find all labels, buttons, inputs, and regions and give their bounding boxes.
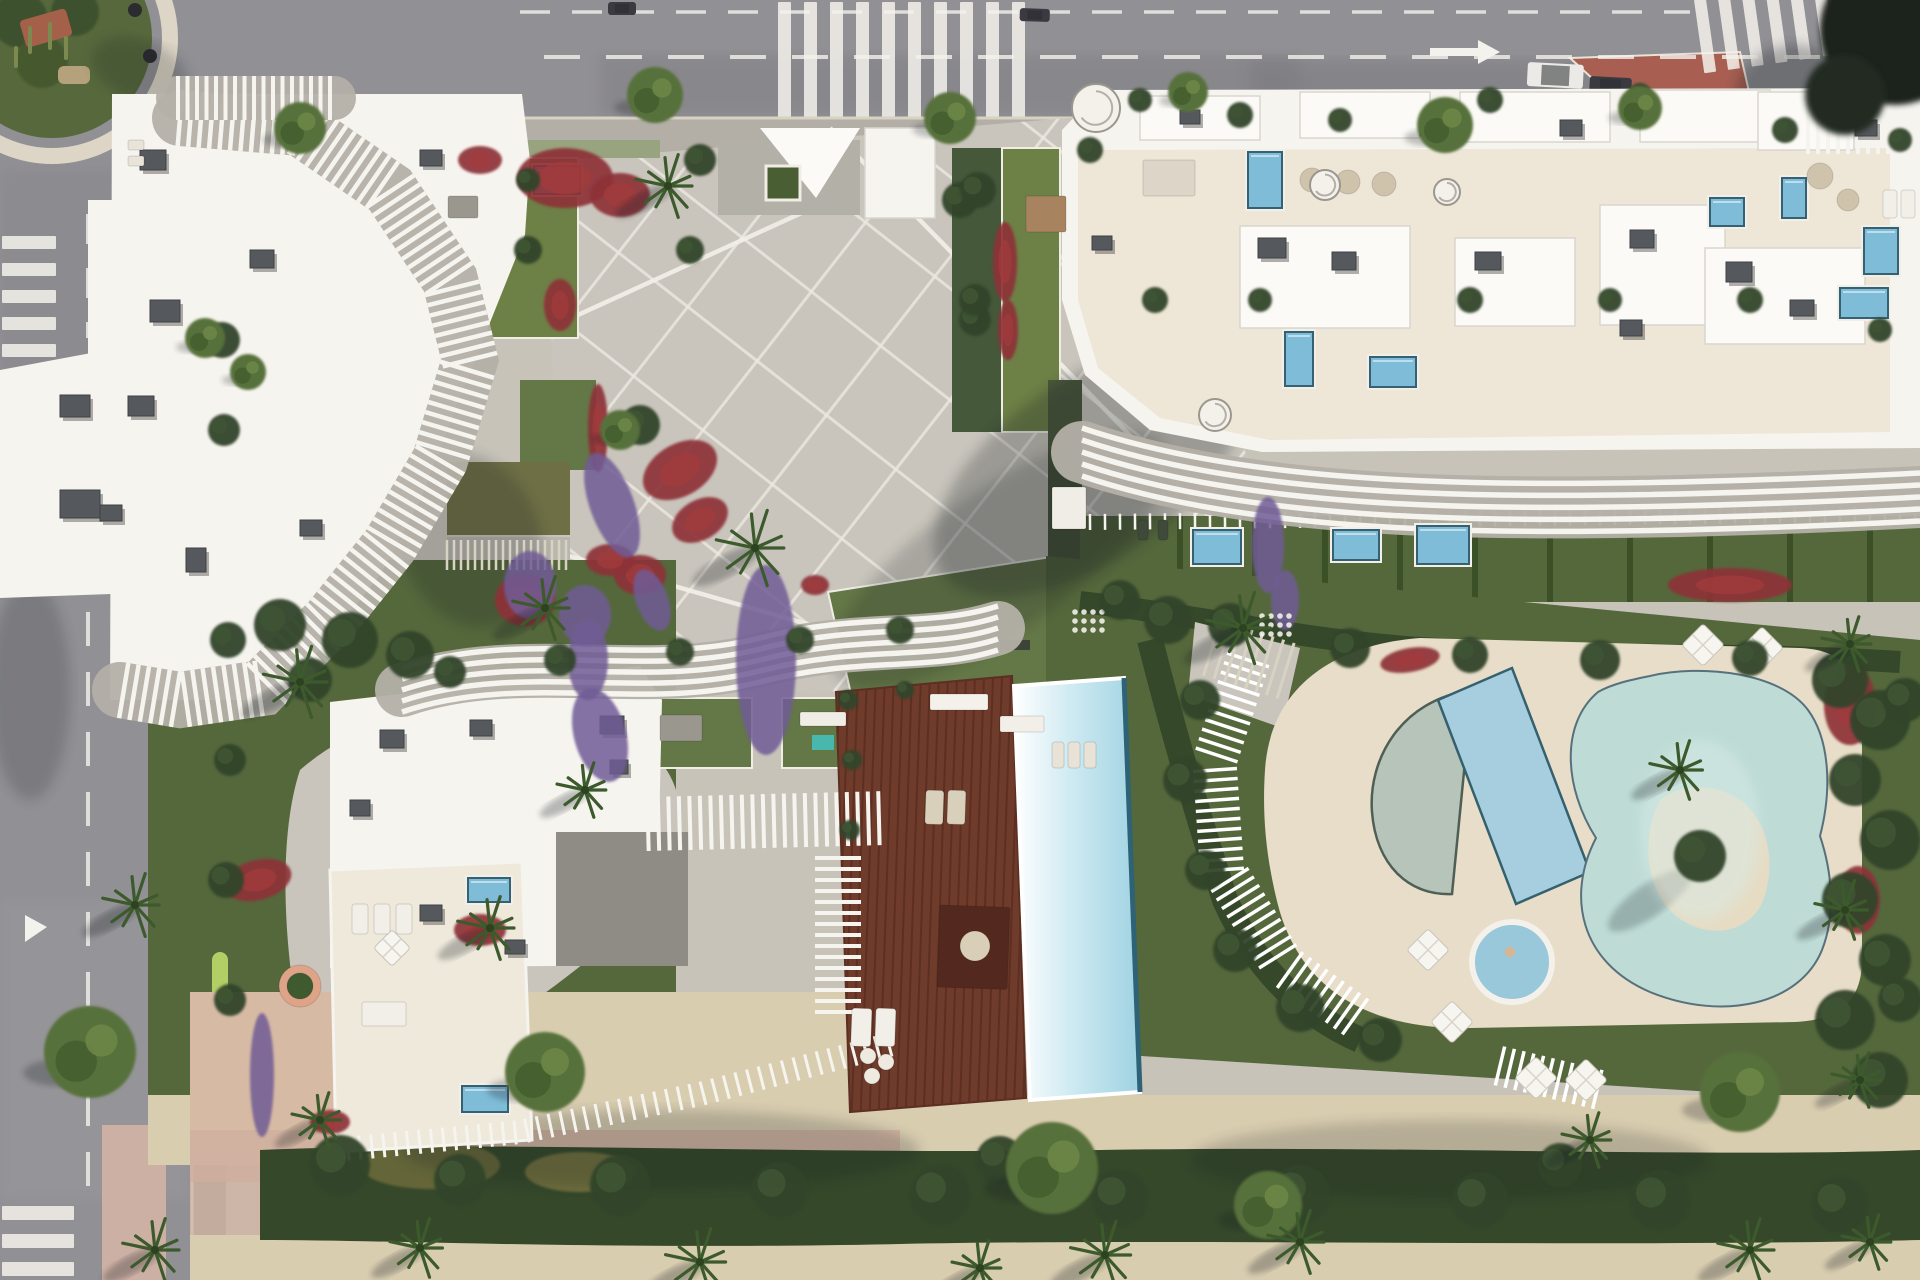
shrub-cluster — [1180, 680, 1220, 720]
hatch-box — [1620, 320, 1642, 336]
shrub-highlight — [1870, 321, 1882, 333]
shrub-highlight — [1600, 291, 1612, 303]
hatch-box — [470, 720, 492, 736]
hatch-box — [350, 800, 370, 816]
shrub-highlight — [1856, 698, 1886, 728]
sun-lounger — [851, 1008, 872, 1047]
shrub-highlight — [1145, 290, 1158, 303]
shrub-highlight — [1189, 855, 1209, 875]
shrub-highlight — [214, 627, 232, 645]
shrub-highlight — [1167, 764, 1189, 786]
plunge-pool — [1707, 195, 1747, 229]
outdoor-furniture — [660, 715, 702, 741]
shrub-cluster — [434, 656, 466, 688]
shrub-highlight — [316, 1143, 346, 1173]
spiral-stair — [1434, 179, 1460, 205]
paving-dot — [1072, 618, 1078, 624]
red-flower-bed — [801, 575, 829, 595]
plunge-pool — [1245, 149, 1285, 211]
shrub-highlight — [1230, 105, 1243, 118]
roof-hatch — [1475, 252, 1504, 274]
palm-crown — [664, 182, 672, 190]
palm-crown — [1586, 1136, 1594, 1144]
palm-crown — [581, 786, 589, 794]
kids-round-pool — [1472, 922, 1552, 1002]
outdoor-furniture — [1052, 487, 1086, 529]
car-glass — [1541, 65, 1570, 86]
plunge-pool — [1330, 527, 1382, 563]
sun-lounger — [1084, 742, 1096, 768]
fin-bar — [815, 793, 816, 847]
outdoor-furniture — [448, 196, 478, 218]
shrub-cluster — [1328, 108, 1352, 132]
plunge-pool — [1367, 354, 1419, 390]
roof-hatch — [1258, 238, 1289, 262]
purple-flower-bed — [1271, 570, 1299, 630]
shrub-cluster — [1860, 810, 1920, 870]
shrub-cluster — [516, 168, 540, 192]
shrub-cluster — [1868, 318, 1892, 342]
shrub-highlight — [1080, 140, 1093, 153]
red-bed-core — [807, 580, 822, 591]
shrub-highlight — [1456, 642, 1474, 660]
tree-canopy-light — [85, 1024, 117, 1056]
hatch-box — [60, 395, 90, 417]
zebra-stripe — [2, 263, 56, 276]
round-furniture — [878, 1054, 894, 1070]
shrub-highlight — [1821, 998, 1851, 1028]
shrub-cluster — [254, 599, 306, 651]
red-flower-bed — [993, 222, 1017, 302]
plunge-pool — [1190, 527, 1244, 567]
zebra-stripe — [2, 317, 56, 330]
pool-water — [1417, 526, 1469, 564]
shrub-cluster — [214, 744, 246, 776]
shrub-highlight — [1864, 941, 1890, 967]
outdoor-furniture — [800, 712, 846, 726]
shrub-highlight — [964, 177, 982, 195]
shrub-cluster — [896, 681, 914, 699]
tree-canopy-light — [297, 112, 315, 130]
shrub-cluster — [1829, 754, 1881, 806]
fin-bar — [689, 796, 690, 850]
shrub-cluster — [514, 236, 542, 264]
shrub-cluster — [1457, 287, 1483, 313]
zebra-stripe — [2, 290, 56, 303]
shrub-highlight — [1818, 1184, 1846, 1212]
roof-hatch — [186, 548, 209, 576]
shrub-cluster — [1185, 850, 1225, 890]
paving-dot — [1072, 609, 1078, 615]
palm-crown — [1746, 1246, 1754, 1254]
shrub-highlight — [1334, 633, 1354, 653]
palm-crown — [1856, 1076, 1864, 1084]
red-flower-bed — [998, 300, 1018, 360]
palm-crown — [131, 901, 139, 909]
shrub-highlight — [1679, 837, 1705, 863]
shrub-highlight — [679, 240, 693, 254]
tree-canopy-light — [203, 326, 217, 340]
red-flower-bed — [544, 279, 576, 331]
paving-dot — [1277, 622, 1283, 628]
sun-lounger — [1883, 190, 1897, 218]
paving-dot — [1259, 631, 1265, 637]
outdoor-furniture — [128, 140, 144, 150]
shrub-cluster — [1227, 102, 1253, 128]
paving-dot — [1081, 627, 1087, 633]
round-furniture — [864, 1068, 880, 1084]
shrub-highlight — [898, 683, 907, 692]
paving-dot — [1277, 631, 1283, 637]
outdoor-furniture — [1026, 196, 1066, 232]
sun-lounger — [1901, 190, 1915, 218]
zebra-stripe — [2, 344, 56, 357]
shrub-cluster — [786, 626, 814, 654]
fin-bar — [647, 797, 648, 851]
shrub-highlight — [844, 753, 854, 763]
palm-crown — [696, 1258, 704, 1266]
shrub-cluster — [1477, 87, 1503, 113]
roundabout-drain — [128, 3, 142, 17]
sun-lounger — [396, 904, 412, 934]
spiral-stair — [1072, 84, 1120, 132]
roof-hatch — [1620, 320, 1645, 340]
fin-bar — [784, 794, 785, 848]
tree-canopy-light — [1186, 80, 1200, 94]
shrub-highlight — [1834, 761, 1860, 787]
fin-bar — [668, 796, 669, 850]
shrub-cluster — [208, 414, 240, 446]
fin-bar — [731, 795, 732, 849]
plunge-pool — [1779, 175, 1809, 221]
sun-lounger — [1158, 520, 1168, 540]
shrub-highlight — [518, 171, 530, 183]
roof-hatch — [1630, 230, 1657, 252]
red-bed-core — [998, 240, 1011, 284]
patio-planter — [766, 166, 800, 200]
hatch-box — [60, 490, 100, 518]
car — [1020, 8, 1050, 22]
hatch-box — [1560, 120, 1582, 136]
roof-hatch — [100, 505, 125, 525]
round-furniture — [960, 931, 990, 961]
roof-hatch — [250, 250, 277, 272]
outdoor-furniture — [1000, 716, 1044, 732]
shrub-highlight — [1887, 684, 1909, 706]
outdoor-furniture — [362, 1002, 406, 1026]
hatch-box — [1180, 110, 1200, 124]
pool-water — [1285, 332, 1313, 386]
roof-hatch — [300, 520, 325, 540]
roof-hatch — [60, 490, 103, 522]
aerial-render-stage — [0, 0, 1920, 1280]
fin-bar — [836, 792, 837, 846]
aerial-site-plan — [0, 0, 1920, 1280]
paving-dot — [1286, 631, 1292, 637]
shrub-cluster — [310, 1135, 370, 1195]
shrub-cluster — [1732, 640, 1768, 676]
sun-lounger — [875, 1008, 896, 1047]
sun-lounger — [374, 904, 390, 934]
shrub-cluster — [1452, 637, 1488, 673]
shrub-cluster — [1077, 137, 1103, 163]
car-glass — [1027, 10, 1042, 20]
shrub-cluster — [1859, 934, 1911, 986]
shrub-highlight — [842, 823, 852, 833]
shrub-cluster — [886, 616, 914, 644]
roof-hatch — [150, 300, 183, 326]
shrub-highlight — [328, 619, 356, 647]
tree-canopy-light — [1638, 95, 1653, 110]
palm-crown — [316, 1116, 324, 1124]
palm-crown — [751, 544, 759, 552]
shrub-cluster — [1878, 978, 1920, 1022]
shrub-highlight — [1866, 818, 1896, 848]
shrub-highlight — [1184, 685, 1204, 705]
shrub-cluster — [1772, 117, 1798, 143]
fin-band — [815, 858, 861, 1012]
purple-flower-bed — [559, 585, 611, 645]
car — [608, 2, 636, 15]
paving-dot — [1268, 631, 1274, 637]
shrub-cluster — [1815, 990, 1875, 1050]
shrub-cluster — [1598, 288, 1622, 312]
tree-canopy-light — [541, 1048, 569, 1076]
shrub-highlight — [1740, 290, 1753, 303]
shrub-highlight — [1362, 1024, 1384, 1046]
shrub-highlight — [1736, 645, 1754, 663]
roof-hatch — [420, 905, 445, 925]
shrub-highlight — [547, 648, 563, 664]
shrub-highlight — [889, 620, 903, 634]
car — [1527, 62, 1584, 89]
roof-hatch — [420, 150, 445, 170]
fin-bar — [878, 791, 879, 845]
roof-hatch — [1790, 300, 1817, 320]
shrub-highlight — [687, 148, 703, 164]
plunge-pool — [1861, 225, 1901, 277]
outdoor-furniture — [930, 694, 988, 710]
roof-hatch — [470, 720, 495, 740]
palm-crown — [1101, 1251, 1109, 1259]
shrub-highlight — [1775, 120, 1788, 133]
shrub-highlight — [1217, 934, 1239, 956]
fin-bar — [868, 791, 869, 845]
hatch-box — [1332, 252, 1356, 270]
tree-canopy-light — [246, 361, 259, 374]
shrub-highlight — [1149, 602, 1173, 626]
red-bed-core — [539, 162, 592, 195]
paving-dot — [1286, 622, 1292, 628]
fin-bar — [826, 793, 827, 847]
roof-hatch — [1180, 110, 1203, 128]
shrub-cluster — [1213, 928, 1257, 972]
zebra-stripe — [2, 236, 56, 249]
palm-crown — [1676, 766, 1684, 774]
tree-canopy-light — [1442, 108, 1462, 128]
shrub-cluster — [1248, 288, 1272, 312]
sun-lounger — [947, 790, 966, 825]
shrub-cluster — [1452, 1172, 1508, 1228]
palm-crown — [486, 924, 494, 932]
hatch-box — [380, 730, 404, 748]
shrub-cluster — [210, 622, 246, 658]
shrub-cluster — [1812, 1177, 1868, 1233]
sun-lounger — [1138, 520, 1148, 540]
shrub-cluster — [214, 984, 246, 1016]
palm-crown — [1239, 624, 1247, 632]
outdoor-furniture — [1143, 160, 1195, 196]
shrub-cluster — [752, 1162, 808, 1218]
red-bed-core — [1696, 576, 1764, 595]
shrub-highlight — [517, 240, 531, 254]
shrub-cluster — [1737, 287, 1763, 313]
purple-flower-bed — [250, 1013, 274, 1137]
shrub-highlight — [1882, 984, 1904, 1006]
shrub-cluster — [544, 644, 576, 676]
paving-dot — [1090, 609, 1096, 615]
shrub-highlight — [259, 606, 285, 632]
shrub-cluster — [1330, 628, 1370, 668]
spiral-stair — [1199, 399, 1231, 431]
shrub-highlight — [962, 288, 978, 304]
fin-bar — [857, 792, 858, 846]
fin-bar — [658, 797, 659, 851]
hatch-box — [1630, 230, 1654, 248]
sun-lounger — [1052, 742, 1064, 768]
shrub-cluster — [208, 862, 244, 898]
shrub-cluster — [1142, 287, 1168, 313]
fin-bar — [679, 796, 680, 850]
mini-plunge — [812, 735, 834, 750]
shrub-highlight — [211, 418, 227, 434]
sun-lounger — [352, 904, 368, 934]
sun-lounger — [925, 790, 944, 825]
outdoor-furniture — [128, 156, 144, 166]
plunge-pool — [1414, 523, 1472, 567]
hatch-box — [420, 905, 442, 921]
hatch-box — [100, 505, 122, 521]
roof-hatch — [1726, 262, 1755, 286]
shrub-highlight — [1104, 585, 1124, 605]
shrub-cluster — [1674, 830, 1726, 882]
shrub-cluster — [434, 1154, 486, 1206]
paving-dot — [1099, 618, 1105, 624]
roof-hatch — [1092, 236, 1115, 254]
palm-crown — [976, 1264, 984, 1272]
paving-dot — [1072, 627, 1078, 633]
fin-bar — [763, 794, 764, 848]
shrub-cluster — [910, 1165, 970, 1225]
paving-dot — [1081, 609, 1087, 615]
shrub-cluster — [1580, 640, 1620, 680]
shrub-cluster — [590, 1155, 650, 1215]
shrub-cluster — [1128, 88, 1152, 112]
roof-hatch — [128, 396, 157, 420]
hatch-box — [250, 250, 274, 268]
palm-crown — [1296, 1238, 1304, 1246]
shrub-highlight — [1584, 645, 1604, 665]
palm-crown — [1846, 640, 1854, 648]
roof-hatch — [1560, 120, 1585, 140]
palm-crown — [151, 1246, 159, 1254]
shrub-highlight — [596, 1163, 626, 1193]
fin-bar — [721, 795, 722, 849]
shrub-cluster — [1358, 1018, 1402, 1062]
plunge-pool — [465, 875, 513, 905]
deck-infinity-pool — [1014, 678, 1140, 1100]
plunge-pool — [1837, 285, 1891, 321]
paving-dot — [1090, 627, 1096, 633]
plunge-pool — [1282, 329, 1316, 389]
shrub-highlight — [789, 630, 803, 644]
fin-bar — [710, 795, 711, 849]
shrub-highlight — [669, 642, 683, 656]
shrub-highlight — [1098, 1177, 1126, 1205]
shrub-cluster — [1163, 758, 1207, 802]
palm-crown — [1866, 1238, 1874, 1246]
shrub-cluster — [684, 144, 716, 176]
round-furniture — [1372, 172, 1396, 196]
sun-lounger — [1068, 742, 1080, 768]
shrub-cluster — [1276, 984, 1324, 1032]
shrub-cluster — [1630, 1170, 1690, 1230]
tree-canopy-light — [947, 102, 965, 120]
hatch-box — [186, 548, 206, 572]
red-bed-core — [1003, 314, 1014, 347]
island-sand-patch — [58, 66, 90, 84]
shrub-highlight — [439, 1161, 465, 1187]
hatch-box — [150, 300, 180, 322]
fin-bar — [773, 794, 774, 848]
shrub-highlight — [391, 637, 415, 661]
palm-crown — [541, 604, 549, 612]
shrub-highlight — [1636, 1178, 1666, 1208]
pool-water — [1864, 228, 1898, 274]
hatch-box — [1726, 262, 1752, 282]
purple-flower-bed — [736, 565, 796, 755]
pool-water — [1782, 178, 1806, 218]
shrub-highlight — [1890, 131, 1902, 143]
shrub-cluster — [676, 236, 704, 264]
palm-crown — [416, 1244, 424, 1252]
shrub-highlight — [212, 867, 230, 885]
shrub-cluster — [1100, 580, 1140, 620]
shrub-cluster — [666, 638, 694, 666]
paving-dot — [1286, 613, 1292, 619]
shrub-highlight — [916, 1173, 946, 1203]
palm-crown — [296, 678, 304, 686]
shrub-highlight — [1460, 290, 1473, 303]
shrub-cluster — [1092, 1170, 1148, 1226]
entrance-pavilion-roof — [865, 128, 935, 218]
spiral-stair — [1310, 170, 1340, 200]
red-flower-bed — [1668, 568, 1792, 602]
tree-canopy-light — [618, 418, 632, 432]
shrub-highlight — [437, 660, 453, 676]
fin-bar — [805, 793, 806, 847]
building-c-courtyard — [556, 832, 688, 966]
shrub-highlight — [1281, 990, 1305, 1014]
tree-canopy-light — [652, 78, 672, 98]
shrub-cluster — [386, 631, 434, 679]
round-furniture — [287, 973, 313, 999]
tree-canopy-light — [1265, 1185, 1289, 1209]
zebra-stripe — [2, 1262, 74, 1276]
fin-bar — [794, 793, 795, 847]
hatch-box — [1790, 300, 1814, 316]
hatch-box — [420, 150, 442, 166]
